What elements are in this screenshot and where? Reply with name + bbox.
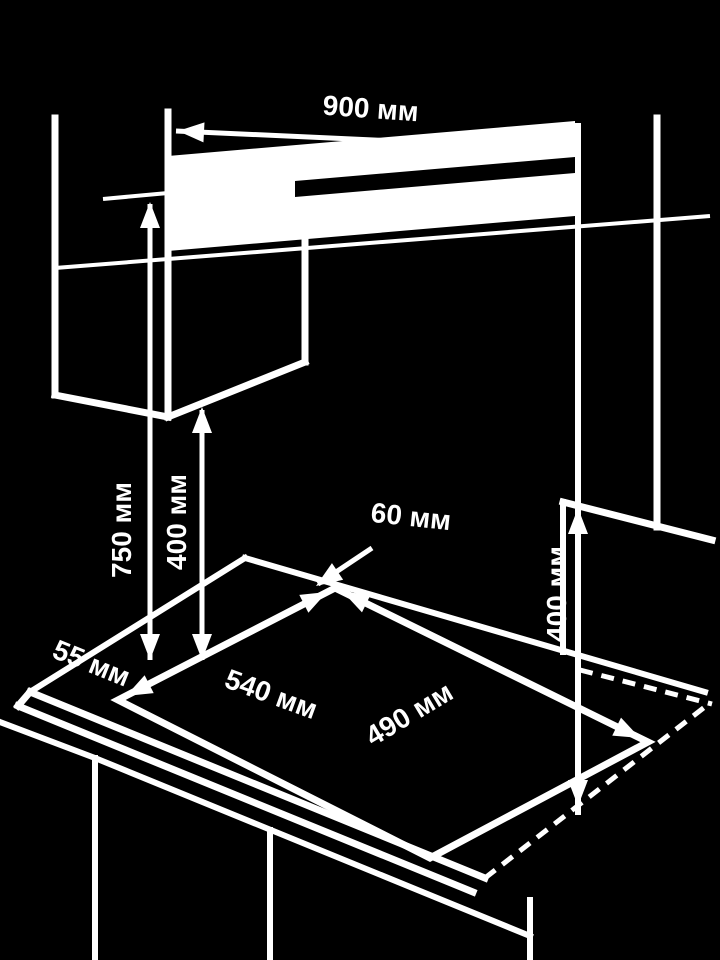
dim-490-label: 490 мм — [360, 676, 458, 752]
dim-900-arrow-left — [177, 121, 204, 142]
dim-400r-arrow-up — [568, 508, 588, 534]
dim-400l-label: 400 мм — [161, 474, 192, 570]
dim-750-extension — [103, 193, 168, 199]
left-cabinet-bottom-side — [168, 362, 305, 417]
base-cabinet-top-edge — [0, 722, 530, 936]
installation-diagram: 900 мм 750 мм 400 мм 400 мм 60 мм 55 мм … — [0, 0, 720, 960]
dim-900-label: 900 мм — [322, 90, 420, 128]
worktop-back-edge — [245, 558, 705, 692]
diagram-canvas: 900 мм 750 мм 400 мм 400 мм 60 мм 55 мм … — [0, 0, 720, 960]
dim-540-arrow-right — [299, 583, 331, 613]
dim-60-label: 60 мм — [369, 497, 452, 536]
dim-750-arrow-up — [140, 202, 160, 228]
dim-540-label: 540 мм — [221, 663, 322, 725]
dim-400l-arrow-up — [192, 407, 212, 433]
dim-400r-label: 400 мм — [541, 546, 572, 642]
dim-750-arrow-down — [140, 634, 160, 660]
worktop-left-cap — [18, 692, 30, 706]
dim-750-label: 750 мм — [106, 482, 137, 578]
worktop-dashed-right-edge — [485, 706, 706, 878]
dim-400r-arrow-down — [568, 780, 588, 806]
dim-55-label: 55 мм — [48, 634, 134, 693]
worktop-left-edge — [30, 558, 245, 692]
right-cabinet-bottom — [563, 502, 712, 540]
